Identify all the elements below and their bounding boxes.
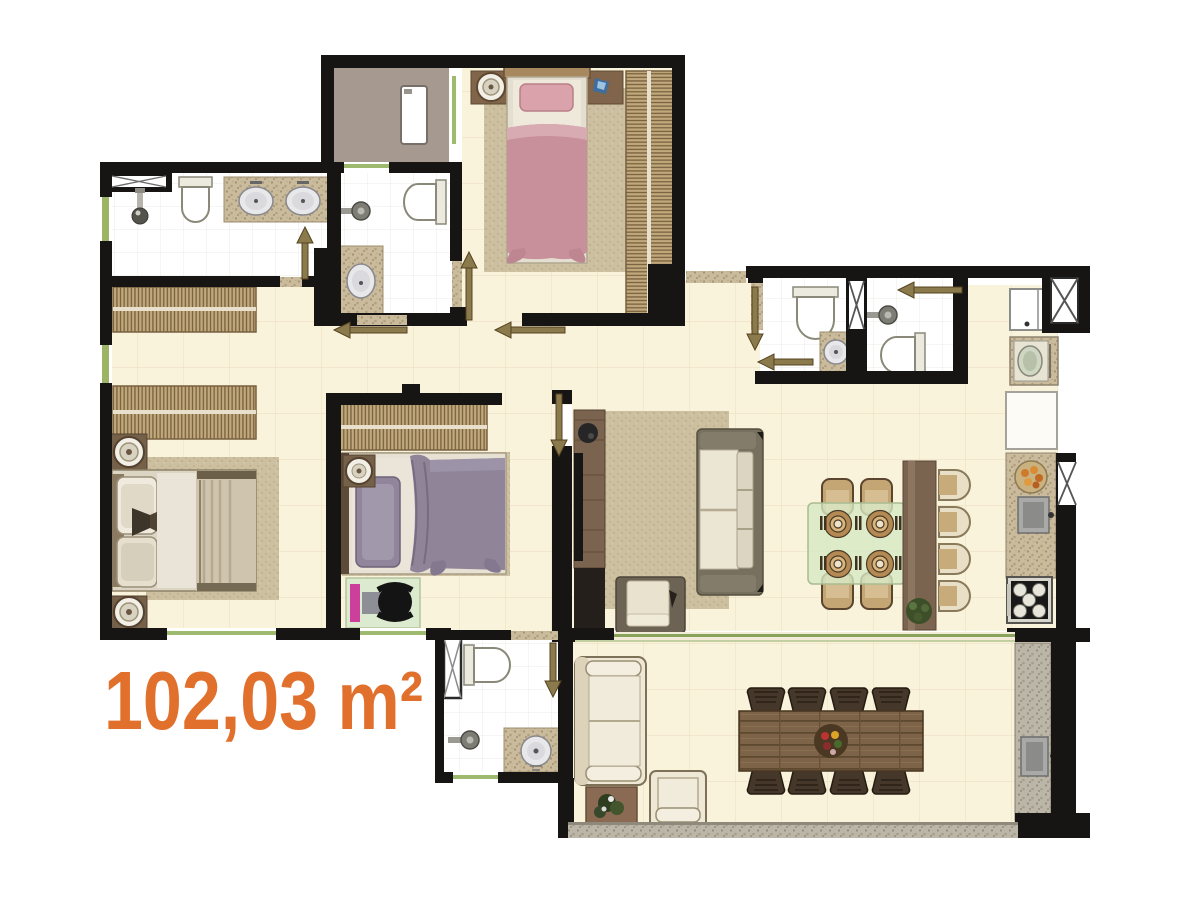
svg-text:102,03 m²: 102,03 m² (104, 656, 423, 748)
